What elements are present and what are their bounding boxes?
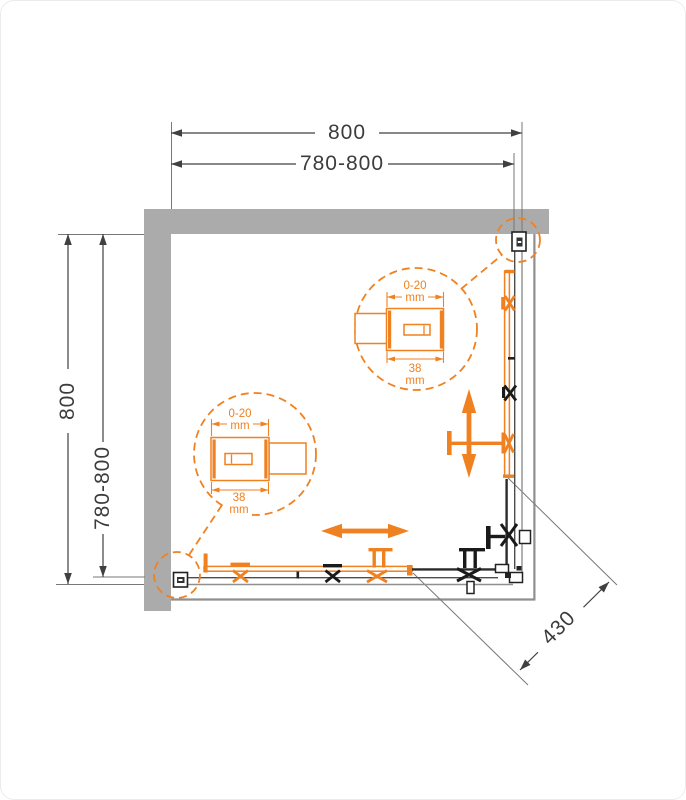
callout-leader-bottom [189, 505, 222, 555]
detail-callouts [154, 218, 540, 598]
technical-drawing-canvas: 800 780-800 800 780-800 430 0-20 mm 38 m… [0, 0, 686, 800]
corner-post-hardware [496, 565, 523, 583]
sliding-door-right-closed [486, 479, 531, 567]
sliding-door-bottom-open [204, 548, 413, 582]
dim-label-top-outer: 800 [315, 122, 379, 144]
profile-slot [404, 325, 430, 336]
glass-panel-section [269, 443, 306, 474]
detail-bottom-profile-width-value: 38 [226, 492, 252, 504]
detail-top-profile-width-value: 38 [402, 363, 428, 375]
wall-left [144, 209, 171, 611]
detail-drawing-top [355, 292, 444, 363]
wall-profile-top-right [512, 232, 526, 251]
wall-top [144, 209, 549, 234]
door-handle-icon [367, 548, 393, 582]
detail-top-adjustment-value: 0-20 [397, 280, 433, 292]
detail-bottom-profile-width-unit: mm [226, 504, 252, 516]
sliding-door-right-open [447, 270, 516, 478]
sliding-door-bottom-closed [412, 548, 497, 594]
roller-icon [231, 563, 251, 582]
slide-direction-arrow-horizontal-icon [321, 524, 409, 538]
roller-bracket [520, 531, 531, 544]
roller-icon [323, 564, 342, 582]
detail-bottom-adjustment-unit: mm [227, 420, 253, 432]
dim-label-left-outer: 800 [57, 369, 79, 433]
rail-clip [508, 357, 515, 360]
glass-panel-section [355, 314, 387, 344]
detail-top-adjustment-unit: mm [402, 292, 428, 304]
detail-top-profile-width-unit: mm [402, 375, 428, 387]
profile-slot [225, 454, 252, 465]
door-handle-icon [447, 431, 514, 455]
detail-drawing-bottom [211, 419, 306, 494]
slide-direction-arrow-vertical-icon [462, 389, 476, 478]
rail-clip [297, 572, 300, 579]
dim-label-left-inner: 780-800 [92, 442, 114, 534]
detail-bottom-adjustment-value: 0-20 [222, 408, 258, 420]
callout-leader-top [461, 255, 502, 289]
dim-label-top-inner: 780-800 [296, 153, 388, 175]
roller-bracket [467, 582, 474, 594]
door-handle-icon [459, 548, 485, 568]
wall-profile-bottom-left [174, 573, 188, 588]
